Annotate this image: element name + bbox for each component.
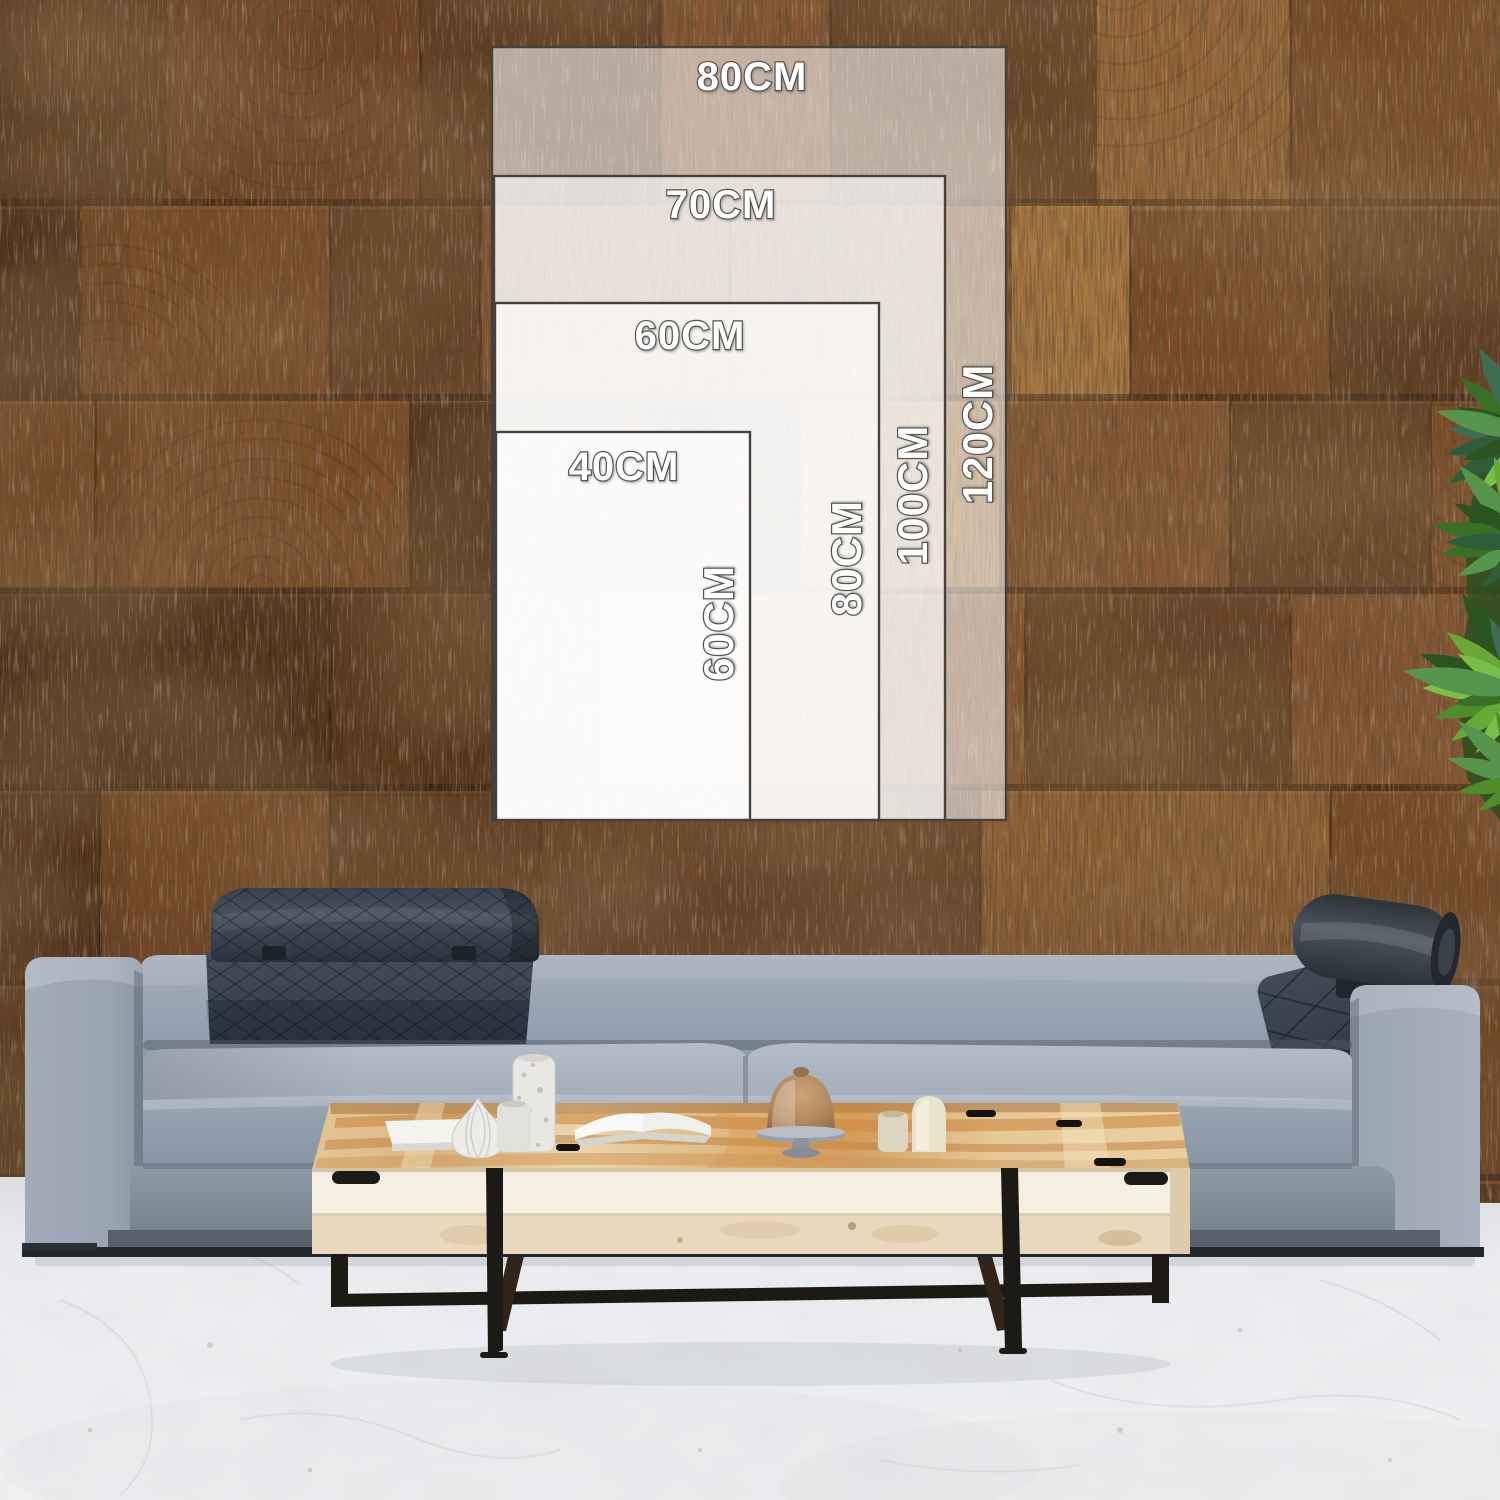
- svg-text:60CM: 60CM: [635, 314, 746, 358]
- svg-text:80CM: 80CM: [823, 500, 870, 616]
- svg-text:60CM: 60CM: [695, 565, 742, 681]
- svg-text:120CM: 120CM: [954, 364, 1001, 504]
- svg-text:80CM: 80CM: [697, 55, 808, 99]
- svg-text:70CM: 70CM: [666, 183, 777, 227]
- svg-text:40CM: 40CM: [569, 445, 680, 489]
- svg-text:100CM: 100CM: [889, 425, 936, 565]
